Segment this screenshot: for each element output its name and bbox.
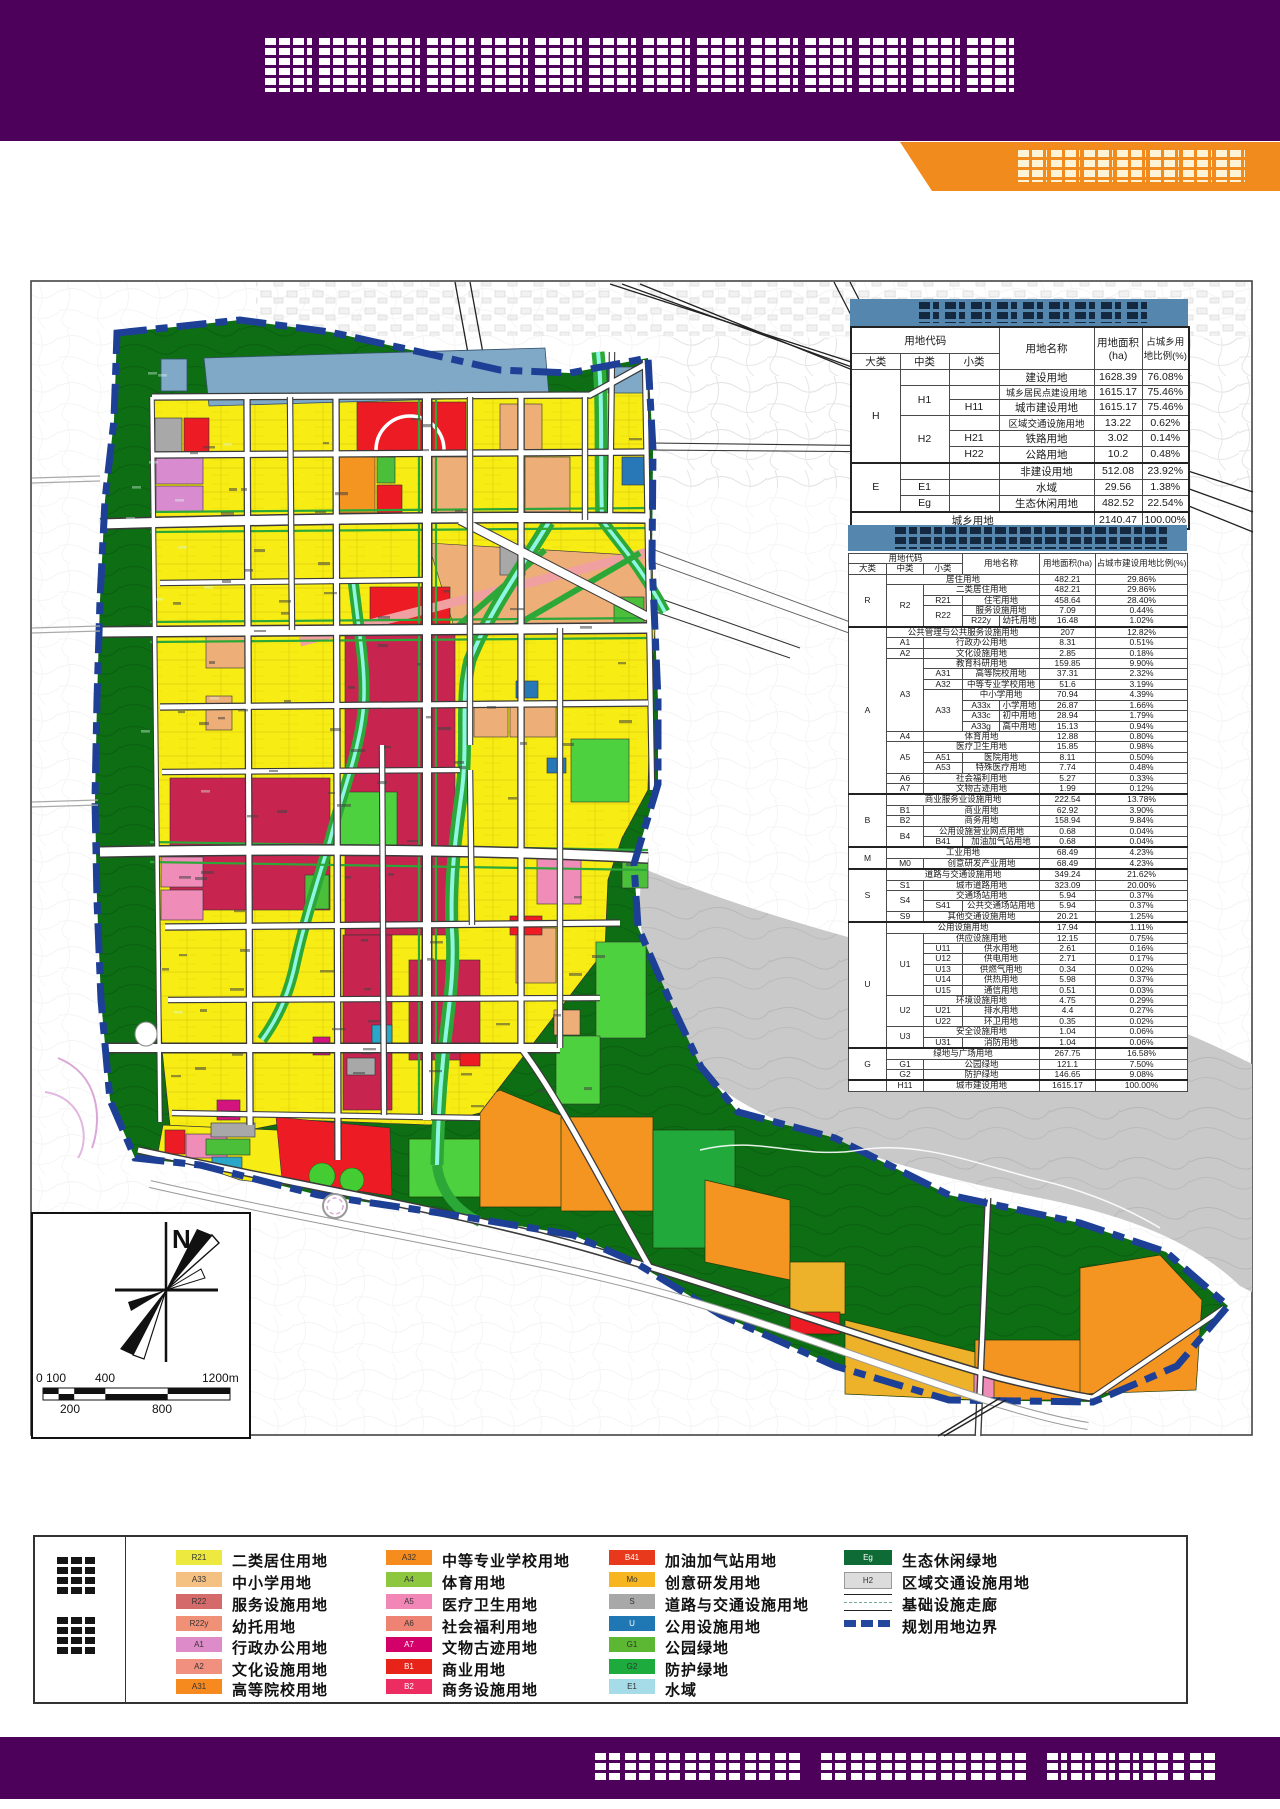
- svg-text:800: 800: [152, 1402, 172, 1416]
- svg-text:200: 200: [60, 1402, 80, 1416]
- svg-text:400: 400: [95, 1371, 115, 1385]
- svg-text:1200m: 1200m: [202, 1371, 239, 1385]
- svg-text:0 100: 0 100: [36, 1371, 66, 1385]
